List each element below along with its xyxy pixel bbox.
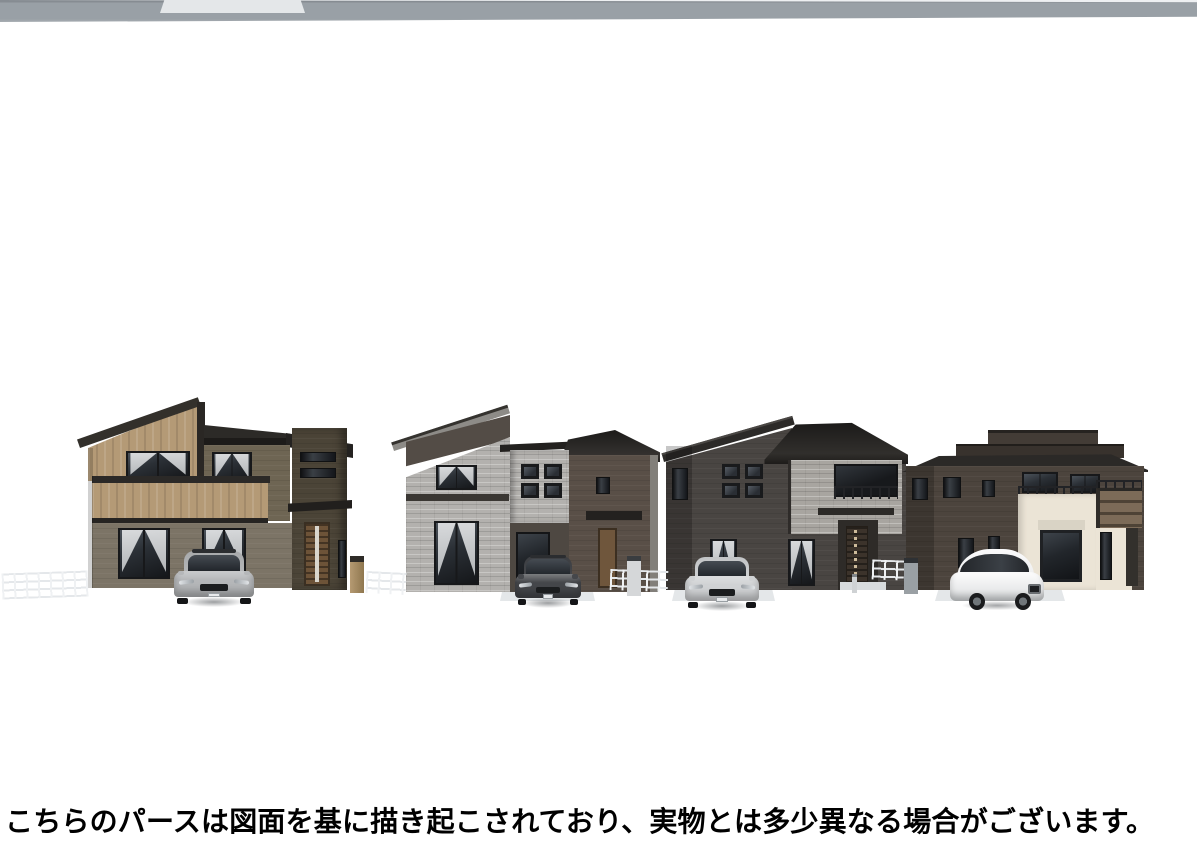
car-wheel-rear (969, 593, 985, 610)
house-2-sq-window-4 (544, 483, 562, 498)
car-license-plate (716, 597, 728, 602)
car-4-white-sedan (950, 549, 1044, 607)
mailbox-post-1 (350, 556, 364, 593)
house-4-balcony-panels (1096, 488, 1142, 528)
house-3-sq-window-1 (722, 464, 740, 479)
house-2-sq-window-3 (521, 483, 539, 498)
house-1-slit-window-upper (300, 452, 336, 462)
car-mirror-right (572, 574, 577, 578)
car-grille (200, 584, 229, 591)
house-3-side-window (672, 468, 688, 500)
mailbox-post-2 (627, 556, 641, 596)
house-3-1f-window-right (788, 539, 815, 586)
house-1-balcony-rail (92, 476, 270, 483)
car-shadow (948, 599, 1046, 612)
boundary-fence-left (2, 571, 89, 600)
house-2-balcony-rail (406, 494, 509, 501)
house-1-tower-narrow-window (338, 540, 346, 578)
render-stage: こちらのパースは図面を基に描き起こされており、実物とは多少異なる場合がございます… (0, 0, 1200, 851)
house-3-sq-window-2 (745, 464, 763, 479)
car-wheel-left (518, 599, 527, 605)
house-2-sq-window-2 (544, 464, 562, 479)
house-3-entry-step (840, 582, 886, 590)
house-1-1f-window-left (118, 528, 170, 579)
car-roof-rails (530, 555, 567, 558)
car-mirror-right (749, 576, 755, 581)
house-3-entry-door (846, 526, 868, 590)
car-3-silver-sedan (685, 557, 759, 607)
house-2-sq-window-1 (521, 464, 539, 479)
car-mirror-left (689, 576, 695, 581)
car-mirror-left (518, 574, 523, 578)
car-grille (1028, 584, 1041, 594)
house-3-balcony-slit (818, 508, 894, 515)
house-1-balcony-panel (92, 483, 268, 518)
mailbox-post-3 (904, 558, 918, 594)
house-2-1f-window (434, 521, 479, 585)
house-4-side-window-b (943, 477, 961, 498)
bollard-2 (852, 574, 857, 593)
car-wheel-right (746, 602, 756, 608)
house-1-mid-roof (204, 420, 290, 445)
driveway-apron-1 (160, 0, 305, 13)
disclaimer-caption: こちらのパースは図面を基に描き起こされており、実物とは多少異なる場合がございます… (5, 800, 1199, 840)
house-4-1f-big-window (1040, 530, 1082, 582)
car-2-dark-wagon (515, 556, 581, 604)
house-1-door-glass (315, 526, 319, 582)
house-4-side-window-c (982, 480, 995, 497)
car-wheel-right (240, 598, 250, 604)
house-4-shutter-box (1038, 520, 1085, 530)
car-wheel-left (688, 602, 698, 608)
car-grille (709, 589, 736, 596)
house-1-slit-window-lower (300, 468, 336, 478)
car-1-silver-hatchback (174, 551, 254, 603)
street-scene (0, 0, 1200, 851)
house-3-balcony-railing (834, 486, 898, 499)
boundary-fence-1-2 (365, 571, 406, 595)
house-2-2f-window (436, 465, 477, 490)
house-2-small-window (596, 477, 610, 494)
house-3-sq-window-4 (745, 483, 763, 498)
house-1-2f-window-left (126, 451, 190, 479)
house-4-side-window-a (912, 478, 928, 500)
car-wheel-left (177, 598, 187, 604)
car-grille (536, 587, 560, 593)
boundary-fence-3-4 (872, 559, 905, 580)
car-wheel-right (570, 599, 579, 605)
car-roof-bar (192, 549, 237, 553)
house-1-corner-shadow (88, 448, 93, 588)
house-4-right-narrow-window (1100, 532, 1112, 580)
house-2-porch-roof (586, 511, 642, 520)
house-3-sq-window-3 (722, 483, 740, 498)
car-license-plate (543, 594, 554, 598)
car-license-plate (208, 593, 221, 598)
house-4-right-trim (1126, 528, 1138, 586)
